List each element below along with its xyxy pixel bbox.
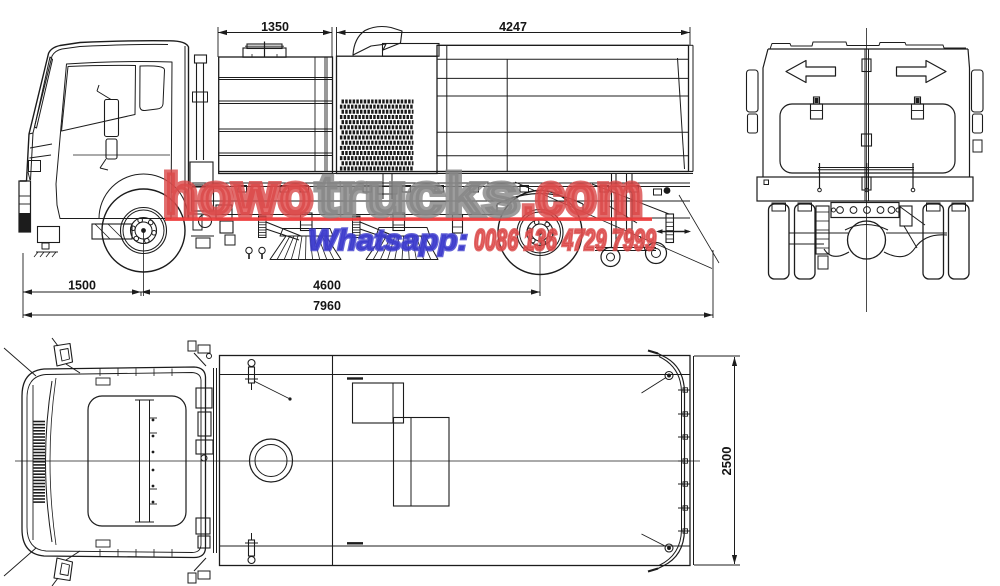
svg-text:2500: 2500 [719,447,734,476]
svg-text:1350: 1350 [261,20,289,34]
svg-text:Whatsapp:: Whatsapp: [308,224,468,257]
svg-text:trucks: trucks [316,163,520,228]
svg-text:howo: howo [163,163,313,228]
svg-text:4600: 4600 [313,279,341,293]
svg-text:0086 136 4729 7999: 0086 136 4729 7999 [474,224,656,257]
svg-text:1500: 1500 [68,279,96,293]
svg-text:7960: 7960 [313,299,341,313]
svg-text:4247: 4247 [499,20,527,34]
svg-text:.com: .com [521,163,643,228]
